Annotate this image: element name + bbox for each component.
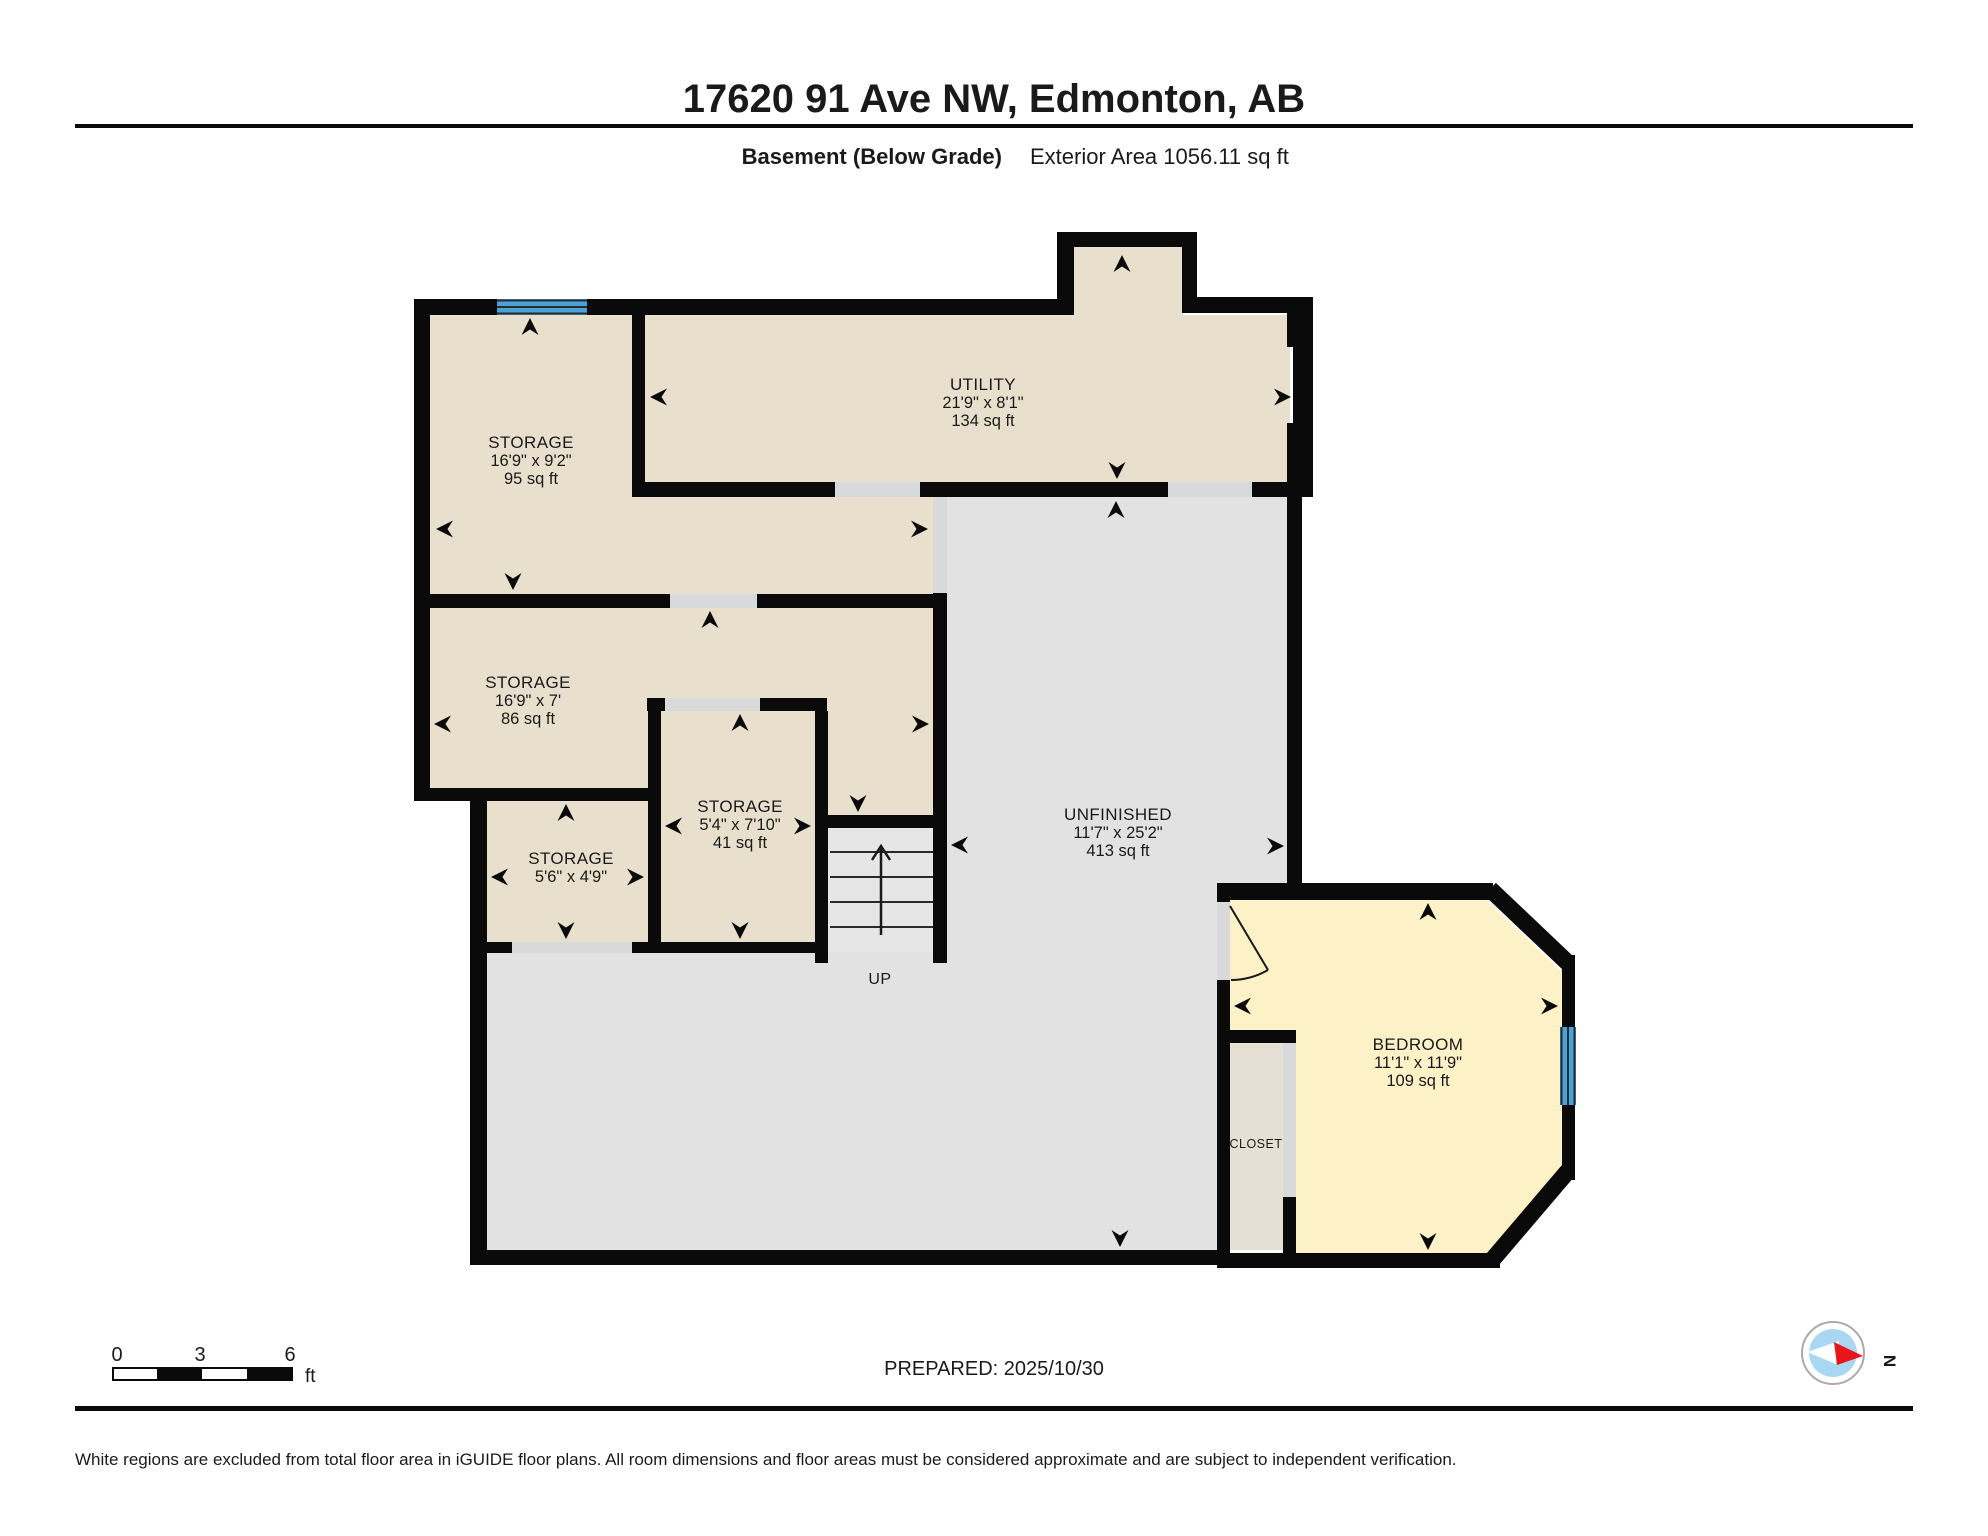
storage-b-dims: 16'9" x 7': [495, 692, 561, 710]
bedroom-dims: 11'1" x 11'9": [1374, 1054, 1462, 1072]
footer-disclaimer: White regions are excluded from total fl…: [75, 1450, 1457, 1469]
storage-a-area: 95 sq ft: [504, 470, 559, 488]
storage-c-opening: [665, 698, 760, 711]
storage-c-area: 41 sq ft: [713, 834, 768, 852]
storage-c-dims: 5'4" x 7'10": [699, 816, 780, 834]
utility-bump-floor: [1074, 246, 1182, 316]
bedroom-name: BEDROOM: [1373, 1035, 1464, 1054]
utility-unfinished-opening: [1168, 482, 1252, 497]
compass-north-label: N: [1880, 1355, 1899, 1367]
scale-bar: 0 3 6 ft: [111, 1344, 316, 1387]
scale-tick-6: 6: [284, 1344, 295, 1366]
storage-b-area: 86 sq ft: [501, 710, 556, 728]
storage-d-label: STORAGE 5'6" x 4'9": [528, 849, 614, 886]
closet-label: CLOSET: [1229, 1137, 1282, 1151]
storage-b-name: STORAGE: [485, 673, 571, 692]
unfinished-area: 413 sq ft: [1086, 842, 1150, 860]
bedroom-door-opening: [1217, 902, 1230, 980]
utility-name: UTILITY: [950, 375, 1016, 394]
exterior-area-label: Exterior Area 1056.11 sq ft: [1030, 144, 1289, 169]
header-rule: [75, 124, 1913, 128]
storage-a-dims: 16'9" x 9'2": [490, 452, 571, 470]
storage-d-name: STORAGE: [528, 849, 614, 868]
utility-label: UTILITY 21'9" x 8'1" 134 sq ft: [942, 375, 1023, 430]
page-title: 17620 91 Ave NW, Edmonton, AB: [683, 77, 1305, 121]
unfinished-dims: 11'7" x 25'2": [1073, 824, 1162, 842]
bedroom-window: [1560, 1027, 1576, 1105]
utility-area: 134 sq ft: [951, 412, 1015, 430]
utility-dims: 21'9" x 8'1": [942, 394, 1023, 412]
compass-icon: N: [1802, 1322, 1899, 1384]
prepared-date: PREPARED: 2025/10/30: [884, 1358, 1104, 1380]
floor-label: Basement (Below Grade): [742, 144, 1002, 169]
scale-unit-label: ft: [305, 1366, 316, 1387]
storage-c-name: STORAGE: [697, 797, 783, 816]
storage-a-name: STORAGE: [488, 433, 574, 452]
floor-plan-page: 17620 91 Ave NW, Edmonton, AB Basement (…: [0, 0, 1988, 1536]
storage-d-opening: [512, 942, 632, 953]
bedroom-area: 109 sq ft: [1386, 1072, 1450, 1090]
stairs-up-label: UP: [868, 971, 891, 988]
storage-a-window: [497, 299, 587, 315]
unfinished-name: UNFINISHED: [1064, 805, 1172, 824]
scale-tick-3: 3: [194, 1344, 205, 1366]
corridor-unfinished-opening: [933, 497, 947, 593]
scale-tick-0: 0: [111, 1344, 122, 1366]
floor-plan-svg: 17620 91 Ave NW, Edmonton, AB Basement (…: [0, 0, 1988, 1536]
storage-b-opening: [670, 594, 757, 608]
storage-d-dims: 5'6" x 4'9": [535, 868, 607, 886]
footer-rule: [75, 1406, 1913, 1411]
closet-opening: [1283, 1043, 1296, 1197]
utility-corridor-opening: [835, 482, 920, 497]
